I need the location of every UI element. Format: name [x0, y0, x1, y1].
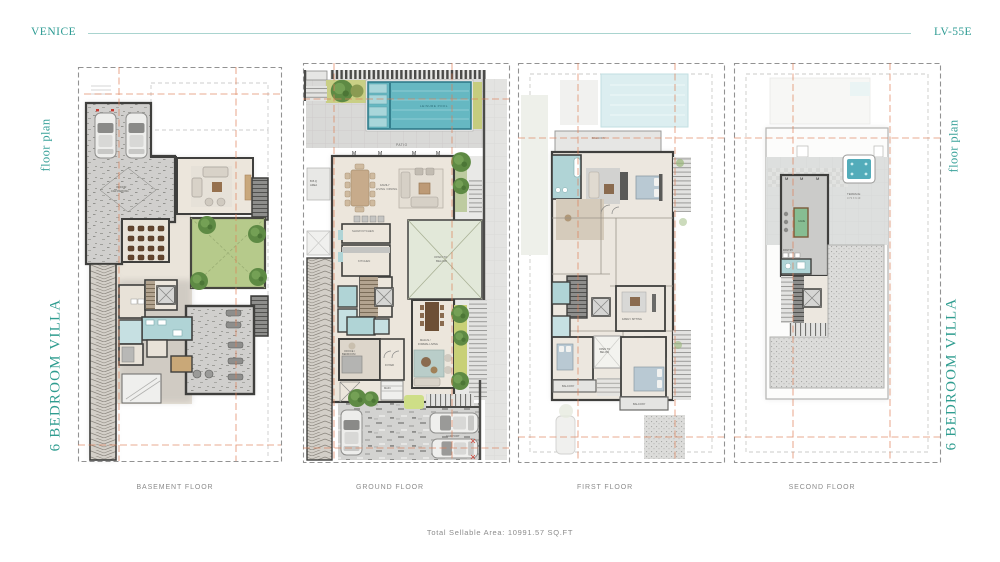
- svg-text:BELOW: BELOW: [600, 351, 610, 354]
- svg-text:PATIO: PATIO: [396, 143, 408, 147]
- svg-text:FAMILY SITTING: FAMILY SITTING: [622, 317, 642, 321]
- svg-text:SHOW KITCHEN: SHOW KITCHEN: [352, 229, 374, 233]
- svg-text:M: M: [800, 176, 803, 181]
- svg-text:LEISURE POOL: LEISURE POOL: [420, 104, 448, 108]
- svg-text:AREA: AREA: [310, 183, 317, 187]
- svg-text:KITCHEN: KITCHEN: [358, 259, 370, 263]
- svg-text:FORMAL LIVING: FORMAL LIVING: [418, 342, 438, 346]
- svg-text:PANTRY: PANTRY: [783, 248, 794, 252]
- svg-text:GAME: GAME: [798, 220, 805, 223]
- svg-text:M: M: [785, 176, 788, 181]
- svg-text:BEDROOM: BEDROOM: [342, 352, 355, 356]
- svg-text:3.73 X 6.19: 3.73 X 6.19: [847, 196, 861, 200]
- svg-text:TERRACE: TERRACE: [847, 192, 860, 196]
- svg-text:B.B.Q: B.B.Q: [310, 179, 317, 183]
- svg-text:BALCONY: BALCONY: [562, 384, 575, 388]
- svg-text:BELOW: BELOW: [436, 259, 447, 263]
- svg-text:FOYER: FOYER: [385, 363, 394, 367]
- svg-text:CAR PARKING: CAR PARKING: [111, 189, 129, 193]
- svg-text:MAIN: MAIN: [384, 386, 391, 390]
- svg-text:BALCONY: BALCONY: [633, 402, 646, 406]
- svg-text:LIVING / DINING: LIVING / DINING: [376, 187, 397, 191]
- svg-text:CARPORT: CARPORT: [446, 434, 460, 438]
- svg-text:MAJLIS /: MAJLIS /: [420, 338, 431, 342]
- svg-text:M: M: [816, 176, 819, 181]
- svg-text:INDOOR: INDOOR: [116, 185, 127, 189]
